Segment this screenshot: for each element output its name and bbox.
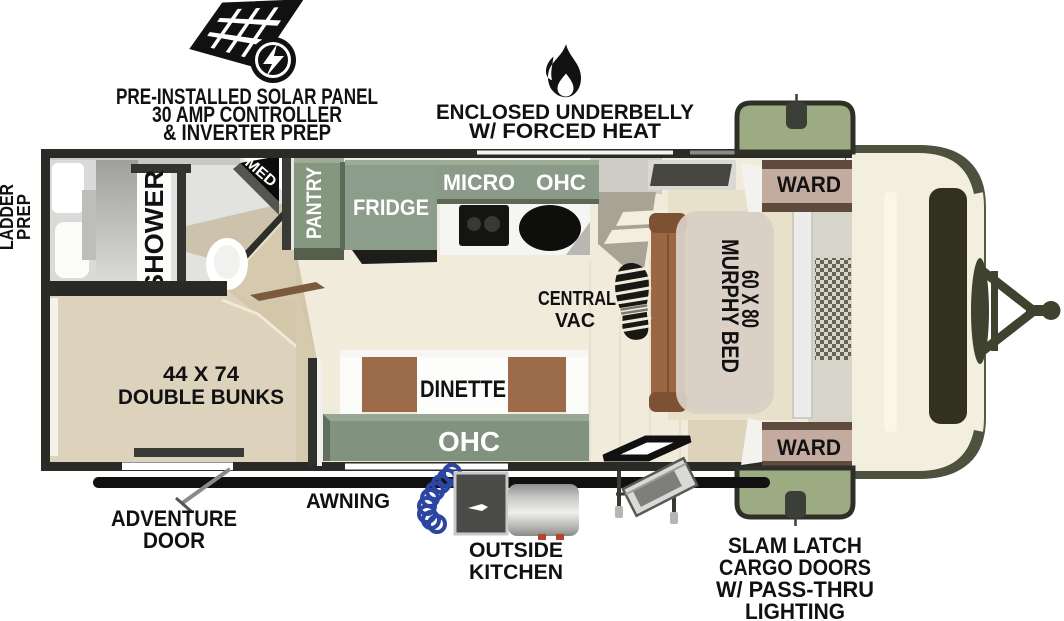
svg-text:SHOWER: SHOWER (139, 170, 169, 292)
svg-text:DOUBLE BUNKS: DOUBLE BUNKS (118, 386, 284, 409)
svg-text:PREP: PREP (14, 194, 34, 240)
svg-text:OHC: OHC (536, 170, 586, 195)
svg-text:& INVERTER PREP: & INVERTER PREP (163, 120, 331, 145)
svg-text:FRIDGE: FRIDGE (353, 195, 429, 220)
svg-text:AWNING: AWNING (306, 490, 390, 513)
svg-text:DINETTE: DINETTE (420, 376, 506, 403)
svg-text:PANTRY: PANTRY (303, 167, 326, 239)
svg-text:VAC: VAC (555, 310, 595, 332)
svg-text:OHC: OHC (438, 426, 500, 457)
svg-text:MURPHY BED: MURPHY BED (716, 239, 743, 373)
svg-text:MICRO: MICRO (443, 170, 515, 195)
svg-text:W/ FORCED HEAT: W/ FORCED HEAT (469, 120, 661, 143)
svg-text:LIGHTING: LIGHTING (745, 599, 845, 621)
svg-text:WARD: WARD (777, 435, 841, 460)
svg-text:DOOR: DOOR (143, 528, 205, 553)
svg-text:CENTRAL: CENTRAL (538, 288, 616, 310)
svg-text:44 X 74: 44 X 74 (163, 363, 239, 386)
svg-text:OUTSIDE: OUTSIDE (469, 539, 563, 562)
svg-text:KITCHEN: KITCHEN (469, 561, 563, 584)
svg-text:WARD: WARD (777, 172, 841, 197)
